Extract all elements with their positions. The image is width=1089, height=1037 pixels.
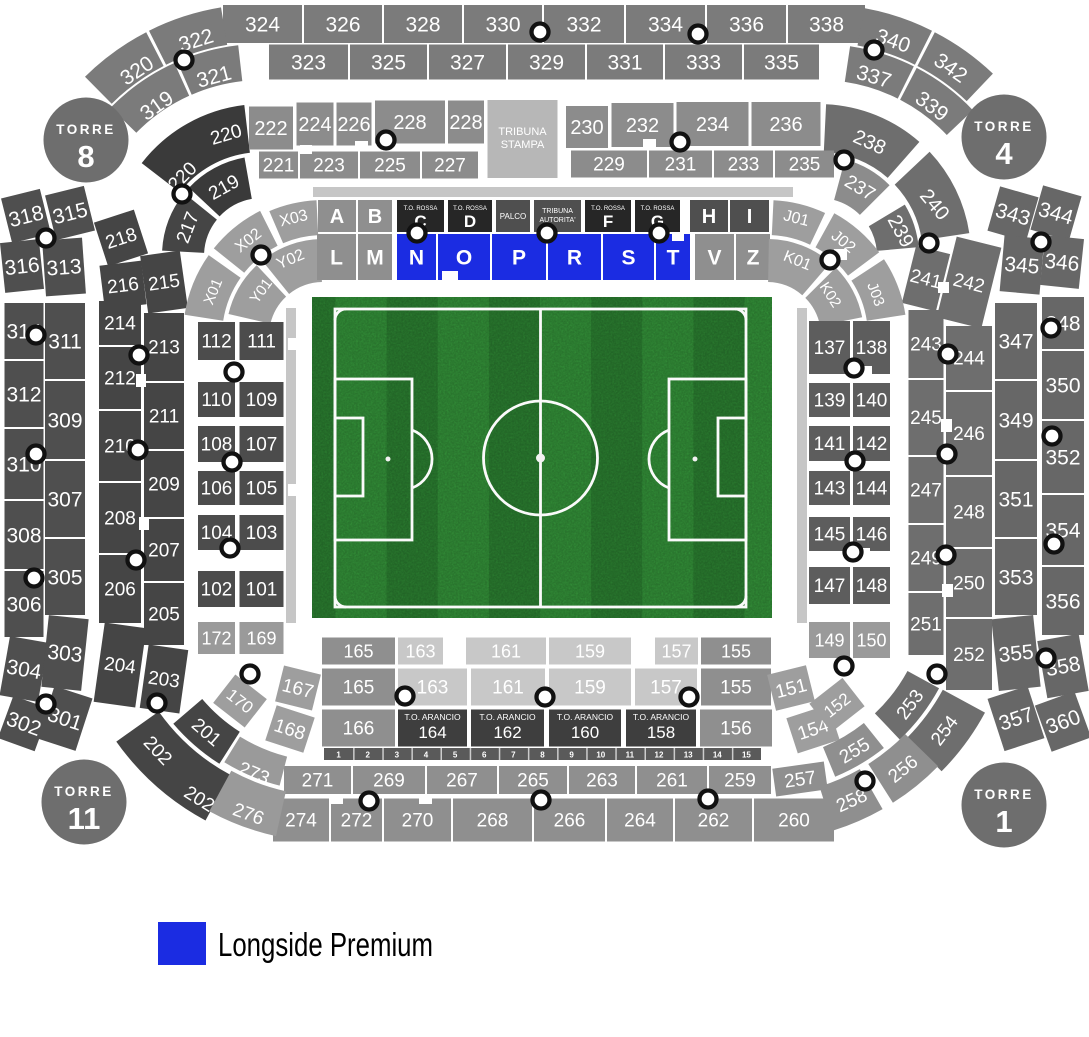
svg-text:208: 208	[104, 509, 136, 530]
svg-text:107: 107	[246, 435, 278, 456]
svg-text:235: 235	[789, 155, 821, 176]
svg-text:263: 263	[586, 771, 618, 792]
svg-text:352: 352	[1045, 446, 1080, 469]
svg-text:345: 345	[1003, 253, 1040, 279]
svg-text:165: 165	[343, 678, 375, 699]
svg-text:338: 338	[809, 13, 844, 36]
svg-text:102: 102	[201, 580, 233, 601]
svg-text:274: 274	[285, 811, 317, 832]
svg-text:155: 155	[721, 641, 751, 661]
svg-text:246: 246	[953, 424, 985, 445]
svg-text:150: 150	[856, 630, 886, 650]
svg-text:332: 332	[566, 13, 601, 36]
svg-text:S: S	[621, 246, 635, 269]
svg-text:T.O. ARANCIO: T.O. ARANCIO	[479, 712, 536, 722]
svg-text:225: 225	[374, 156, 406, 177]
svg-text:243: 243	[910, 335, 942, 356]
svg-text:333: 333	[686, 51, 721, 74]
svg-text:216: 216	[106, 274, 140, 299]
svg-text:214: 214	[104, 314, 136, 335]
svg-text:15: 15	[742, 751, 751, 760]
svg-text:H: H	[702, 206, 716, 228]
svg-text:149: 149	[814, 630, 844, 650]
svg-text:148: 148	[856, 576, 888, 597]
svg-text:262: 262	[698, 811, 730, 832]
svg-text:144: 144	[856, 479, 888, 500]
svg-text:316: 316	[3, 254, 40, 281]
svg-text:5: 5	[453, 751, 458, 760]
svg-text:V: V	[707, 246, 721, 269]
svg-text:B: B	[368, 206, 382, 228]
svg-text:139: 139	[814, 391, 846, 412]
svg-text:303: 303	[46, 641, 83, 668]
svg-text:TORRE: TORRE	[974, 119, 1034, 134]
svg-text:232: 232	[626, 115, 659, 137]
svg-text:313: 313	[46, 255, 83, 280]
svg-text:T: T	[667, 246, 680, 269]
svg-text:4: 4	[995, 136, 1013, 171]
svg-text:227: 227	[434, 156, 466, 177]
svg-text:312: 312	[6, 383, 41, 406]
svg-text:351: 351	[998, 488, 1033, 511]
svg-text:103: 103	[246, 523, 278, 544]
svg-text:140: 140	[856, 391, 888, 412]
svg-text:327: 327	[450, 51, 485, 74]
svg-text:Longside Premium: Longside Premium	[218, 926, 433, 963]
svg-text:329: 329	[529, 51, 564, 74]
svg-text:211: 211	[149, 407, 179, 428]
svg-text:TORRE: TORRE	[56, 122, 116, 137]
svg-text:335: 335	[764, 51, 799, 74]
svg-text:308: 308	[6, 524, 41, 547]
svg-text:158: 158	[647, 723, 675, 742]
svg-text:204: 204	[103, 653, 138, 678]
svg-text:1: 1	[995, 804, 1012, 839]
svg-text:228: 228	[393, 112, 426, 134]
svg-text:156: 156	[720, 719, 752, 740]
svg-text:165: 165	[343, 641, 373, 661]
svg-text:M: M	[366, 246, 384, 269]
svg-text:138: 138	[856, 338, 888, 359]
svg-text:6: 6	[482, 751, 487, 760]
svg-text:164: 164	[418, 723, 446, 742]
svg-text:11: 11	[626, 751, 635, 760]
svg-text:8: 8	[77, 139, 94, 174]
svg-text:109: 109	[246, 390, 278, 411]
svg-text:2: 2	[365, 751, 370, 760]
svg-text:260: 260	[778, 811, 810, 832]
svg-text:159: 159	[575, 641, 605, 661]
svg-text:O: O	[456, 246, 472, 269]
svg-text:157: 157	[661, 641, 691, 661]
svg-text:349: 349	[998, 409, 1033, 432]
svg-text:311: 311	[48, 330, 81, 353]
svg-text:257: 257	[783, 767, 817, 792]
svg-text:D: D	[464, 212, 476, 231]
svg-text:245: 245	[910, 408, 942, 429]
svg-text:10: 10	[596, 751, 605, 760]
svg-text:F: F	[603, 212, 613, 231]
svg-text:146: 146	[856, 525, 888, 546]
svg-text:347: 347	[998, 330, 1033, 353]
svg-text:307: 307	[47, 488, 82, 511]
svg-text:230: 230	[570, 117, 603, 139]
svg-text:269: 269	[373, 771, 405, 792]
svg-text:L: L	[330, 246, 343, 269]
svg-text:161: 161	[491, 641, 521, 661]
svg-text:212: 212	[104, 369, 136, 390]
svg-text:PALCO: PALCO	[500, 212, 527, 221]
svg-text:7: 7	[511, 751, 516, 760]
svg-text:264: 264	[624, 811, 656, 832]
svg-text:248: 248	[953, 503, 985, 524]
svg-text:203: 203	[147, 667, 181, 692]
svg-text:TORRE: TORRE	[54, 784, 114, 799]
svg-text:I: I	[747, 206, 753, 228]
svg-text:261: 261	[656, 771, 688, 792]
svg-text:226: 226	[337, 114, 370, 136]
svg-text:236: 236	[769, 114, 802, 136]
svg-text:346: 346	[1043, 250, 1080, 277]
svg-text:252: 252	[953, 645, 985, 666]
svg-text:4: 4	[424, 751, 429, 760]
svg-text:324: 324	[245, 13, 280, 36]
svg-text:355: 355	[997, 641, 1034, 668]
svg-text:326: 326	[325, 13, 360, 36]
svg-text:323: 323	[291, 51, 326, 74]
svg-text:143: 143	[814, 479, 846, 500]
svg-text:110: 110	[201, 390, 231, 411]
svg-text:305: 305	[47, 566, 82, 589]
svg-text:228: 228	[449, 112, 482, 134]
svg-text:11: 11	[68, 801, 101, 836]
svg-text:271: 271	[302, 771, 334, 792]
svg-text:112: 112	[201, 332, 231, 353]
svg-text:206: 206	[104, 580, 136, 601]
svg-text:Z: Z	[747, 246, 760, 269]
svg-text:172: 172	[201, 628, 231, 648]
svg-text:161: 161	[492, 678, 524, 699]
svg-text:157: 157	[650, 678, 682, 699]
svg-text:259: 259	[724, 771, 756, 792]
svg-text:105: 105	[246, 479, 278, 500]
svg-text:P: P	[512, 246, 526, 269]
svg-text:328: 328	[405, 13, 440, 36]
svg-text:106: 106	[201, 479, 233, 500]
svg-text:T.O. ARANCIO: T.O. ARANCIO	[557, 712, 614, 722]
svg-text:331: 331	[607, 51, 642, 74]
svg-text:231: 231	[665, 155, 697, 176]
svg-text:229: 229	[593, 155, 625, 176]
svg-text:266: 266	[554, 811, 586, 832]
svg-text:159: 159	[574, 678, 606, 699]
svg-text:145: 145	[814, 525, 846, 546]
svg-text:207: 207	[148, 541, 180, 562]
svg-text:233: 233	[728, 155, 760, 176]
svg-text:160: 160	[571, 723, 599, 742]
svg-text:A: A	[330, 206, 344, 228]
svg-text:336: 336	[729, 13, 764, 36]
svg-text:9: 9	[569, 751, 574, 760]
svg-text:267: 267	[446, 771, 478, 792]
svg-text:247: 247	[910, 481, 942, 502]
svg-text:T.O. ARANCIO: T.O. ARANCIO	[404, 712, 461, 722]
svg-text:TRIBUNA: TRIBUNA	[542, 208, 573, 215]
svg-text:141: 141	[814, 434, 846, 455]
svg-text:8: 8	[540, 751, 545, 760]
svg-text:3: 3	[395, 751, 400, 760]
svg-text:N: N	[409, 246, 424, 269]
svg-text:334: 334	[648, 13, 683, 36]
svg-text:205: 205	[148, 605, 180, 626]
svg-text:250: 250	[953, 574, 985, 595]
svg-text:163: 163	[405, 641, 435, 661]
svg-text:272: 272	[341, 811, 373, 832]
svg-text:TORRE: TORRE	[974, 787, 1034, 802]
svg-text:309: 309	[47, 409, 82, 432]
svg-text:222: 222	[254, 118, 287, 140]
svg-text:T.O. ARANCIO: T.O. ARANCIO	[633, 712, 690, 722]
svg-text:1: 1	[336, 751, 341, 760]
svg-text:330: 330	[485, 13, 520, 36]
svg-text:223: 223	[313, 156, 345, 177]
svg-text:265: 265	[517, 771, 549, 792]
svg-text:306: 306	[6, 593, 41, 616]
svg-text:14: 14	[713, 751, 722, 760]
svg-text:155: 155	[720, 678, 752, 699]
svg-text:111: 111	[247, 332, 276, 353]
svg-text:251: 251	[910, 615, 942, 636]
svg-text:13: 13	[684, 751, 693, 760]
svg-text:325: 325	[371, 51, 406, 74]
svg-text:169: 169	[246, 628, 276, 648]
svg-text:137: 137	[814, 338, 846, 359]
svg-text:162: 162	[493, 723, 521, 742]
svg-text:270: 270	[402, 811, 434, 832]
svg-text:221: 221	[263, 156, 295, 177]
svg-text:R: R	[567, 246, 582, 269]
svg-text:356: 356	[1045, 590, 1080, 613]
svg-text:STAMPA: STAMPA	[501, 139, 545, 151]
svg-text:234: 234	[696, 114, 729, 136]
svg-text:101: 101	[246, 580, 278, 601]
svg-text:TRIBUNA: TRIBUNA	[498, 126, 547, 138]
svg-text:213: 213	[148, 338, 180, 359]
svg-text:353: 353	[998, 566, 1033, 589]
svg-text:224: 224	[298, 114, 331, 136]
svg-text:350: 350	[1045, 374, 1080, 397]
svg-text:215: 215	[147, 270, 181, 295]
svg-text:268: 268	[477, 811, 509, 832]
svg-text:147: 147	[814, 576, 846, 597]
svg-text:12: 12	[655, 751, 664, 760]
svg-text:209: 209	[148, 475, 180, 496]
svg-text:166: 166	[343, 719, 375, 740]
svg-text:163: 163	[417, 678, 449, 699]
